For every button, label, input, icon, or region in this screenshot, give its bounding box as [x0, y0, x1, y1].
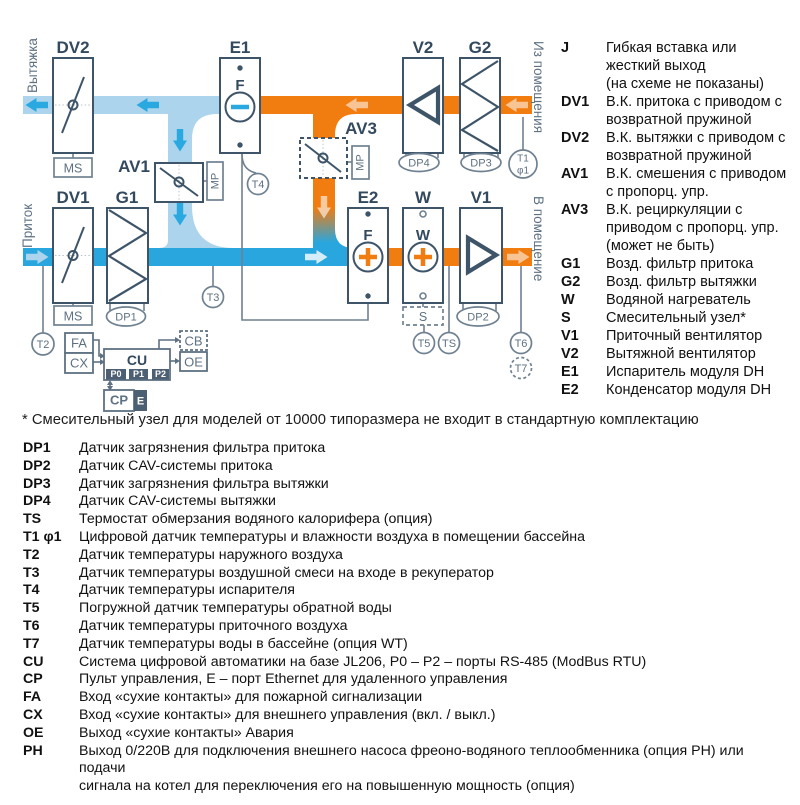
phi1-label: φ1	[517, 166, 529, 177]
sensor-text: Вход «сухие контакты» для внешнего управ…	[79, 707, 495, 725]
ethernet-label: E	[137, 396, 144, 408]
g2-title: G2	[469, 38, 492, 57]
legend-item: E1Испаритель модуля DH	[561, 363, 799, 381]
component-v2	[403, 58, 443, 153]
fa-label: FA	[71, 336, 87, 351]
legend-item: G1Возд. фильтр притока	[561, 255, 799, 273]
sensor-text: Датчик температуры приточного воздуха	[79, 618, 348, 636]
legend-item: V2Вытяжной вентилятор	[561, 345, 799, 363]
sensor-list-item: T3Датчик температуры воздушной смеси на …	[23, 565, 788, 583]
sensor-key: T4	[23, 582, 79, 600]
sensor-text: Вход «сухие контакты» для пожарной сигна…	[79, 689, 422, 707]
legend-item: DV2В.К. вытяжки с приводом с возвратной …	[561, 129, 799, 165]
component-g2	[460, 58, 500, 153]
t5-label: T5	[418, 338, 431, 350]
legend-item: AV1В.К. смешения с приводом с пропорц. у…	[561, 165, 799, 201]
component-dv2	[53, 58, 93, 153]
sensor-key: TS	[23, 511, 79, 529]
port-dot-icon	[365, 293, 370, 298]
dv2-title: DV2	[56, 38, 89, 57]
legend-item: G2Возд. фильтр вытяжки	[561, 273, 799, 291]
sensor-text: Цифровой датчик температуры и влажности …	[79, 529, 585, 547]
oe-label: OE	[184, 355, 203, 370]
legend-text: В.К. смешения с приводом с пропорц. упр.	[606, 165, 786, 201]
component-av1	[155, 163, 203, 202]
legend-text: Смесительный узел*	[606, 309, 746, 327]
port-dot-icon	[237, 142, 242, 147]
sensor-list-item: T4Датчик температуры испарителя	[23, 582, 788, 600]
legend-key: S	[561, 309, 606, 327]
sensor-text: Датчик CAV-системы вытяжки	[79, 493, 276, 511]
legend-text: Гибкая вставка или жесткий выход (на схе…	[606, 39, 764, 93]
av1-mp-label: MP	[210, 173, 222, 190]
legend-item: WВодяной нагреватель	[561, 291, 799, 309]
cu-to-cb-wire	[159, 340, 175, 349]
cu-label: CU	[127, 352, 147, 368]
dv1-title: DV1	[56, 188, 89, 207]
legend-key: V2	[561, 345, 606, 363]
dv2-ms-label: MS	[64, 162, 83, 176]
sensor-text: Пульт управления, E – порт Ethernet для …	[79, 671, 507, 689]
component-g1	[107, 208, 148, 303]
supply-flow-label: Приток	[20, 204, 35, 248]
legend-key: DV2	[561, 129, 606, 165]
sensor-list-item: CUСистема цифровой автоматики на базе JL…	[23, 654, 788, 672]
av3-mp-label: MP	[355, 154, 367, 171]
sensor-list-item: PHВыход 0/220В для подключения внешнего …	[23, 743, 788, 796]
sensor-list-item: FAВход «сухие контакты» для пожарной сиг…	[23, 689, 788, 707]
sensor-text: Датчик температуры воды в бассейне (опци…	[79, 636, 408, 654]
legend-key: G1	[561, 255, 606, 273]
component-av3	[300, 138, 347, 178]
legend-key: W	[561, 291, 606, 309]
legend-key: G2	[561, 273, 606, 291]
legend-text: Возд. фильтр вытяжки	[606, 273, 757, 291]
sensor-list-item: T2Датчик температуры наружного воздуха	[23, 547, 788, 565]
footnote: * Смесительный узел для моделей от 10000…	[22, 412, 782, 428]
v2-title: V2	[413, 38, 434, 57]
g1-title: G1	[116, 188, 139, 207]
component-e2: F	[348, 208, 388, 303]
legend-key: V1	[561, 327, 606, 345]
to-room-label: В помещение	[531, 196, 546, 281]
cb-label: CB	[184, 334, 202, 349]
sensor-key: OE	[23, 725, 79, 743]
control-unit-cluster: FA CX CB OE CU P0 P1 P2 CP E	[65, 331, 207, 411]
v1-title: V1	[471, 188, 492, 207]
e2-f-label: F	[363, 227, 372, 244]
sensor-text: Датчик загрязнения фильтра притока	[79, 440, 325, 458]
component-w: W	[403, 208, 443, 303]
port-dot-icon	[365, 211, 370, 216]
dp4-label: DP4	[408, 158, 429, 170]
dp2-label: DP2	[467, 312, 488, 324]
sensor-list-item: CXВход «сухие контакты» для внешнего упр…	[23, 707, 788, 725]
t1-label: T1	[517, 154, 529, 165]
legend-text: Возд. фильтр притока	[606, 255, 753, 273]
sensor-key: FA	[23, 689, 79, 707]
legend-item: V1Приточный вентилятор	[561, 327, 799, 345]
legend-item: JГибкая вставка или жесткий выход (на сх…	[561, 39, 799, 93]
legend-key: AV1	[561, 165, 606, 201]
fa-to-cu-wire	[93, 340, 100, 356]
component-e1: F	[220, 58, 260, 153]
sensor-list-item: T1 φ1Цифровой датчик температуры и влажн…	[23, 529, 788, 547]
sensor-list-item: CPПульт управления, E – порт Ethernet дл…	[23, 671, 788, 689]
from-room-label: Из помещения	[531, 41, 546, 133]
legend-key: E1	[561, 363, 606, 381]
ts-label: TS	[442, 338, 456, 350]
sensor-key: DP1	[23, 440, 79, 458]
port-dot-icon	[237, 65, 242, 70]
sensor-key: DP3	[23, 476, 79, 494]
legend-item: AV3В.К. рециркуляции с приводом с пропор…	[561, 201, 799, 255]
mixing-branch-fillet-bottom-right	[192, 206, 234, 248]
sensor-list-item: T5Погружной датчик температуры обратной …	[23, 600, 788, 618]
dp3-label: DP3	[470, 158, 491, 170]
av3-title: AV3	[345, 119, 377, 138]
legend-key: AV3	[561, 201, 606, 255]
p0-label: P0	[110, 369, 121, 379]
legend-key: DV1	[561, 93, 606, 129]
sensor-key: T7	[23, 636, 79, 654]
w-letter-label: W	[416, 227, 431, 244]
sensor-list-item: TSТермостат обмерзания водяного калорифе…	[23, 511, 788, 529]
sensor-key: CU	[23, 654, 79, 672]
sensor-key: T5	[23, 600, 79, 618]
e1-title: E1	[230, 38, 251, 57]
flow-arrows	[26, 98, 530, 264]
sensor-key: CX	[23, 707, 79, 725]
cp-label: CP	[110, 393, 128, 408]
component-dv1	[53, 208, 93, 303]
sensor-text: Система цифровой автоматики на базе JL20…	[79, 654, 646, 672]
legend-text: В.К. вытяжки с приводом с возвратной пру…	[606, 129, 785, 165]
legend-text: Вытяжной вентилятор	[606, 345, 756, 363]
cx-label: CX	[70, 356, 88, 371]
t3-label: T3	[207, 292, 220, 304]
mixing-branch-fillet-top	[192, 114, 217, 139]
w-title: W	[415, 188, 432, 207]
legend-text: В.К. рециркуляции с приводом с пропорц. …	[606, 201, 779, 255]
t7-label: T7	[515, 363, 528, 375]
p2-label: P2	[155, 369, 166, 379]
legend-text: Приточный вентилятор	[606, 327, 762, 345]
sensor-list-item: DP1Датчик загрязнения фильтра притока	[23, 440, 788, 458]
sensor-text: Датчик температуры воздушной смеси на вх…	[79, 565, 494, 583]
sensor-text: Выход «сухие контакты» Авария	[79, 725, 294, 743]
legend-key: J	[561, 39, 606, 93]
sensor-key: DP4	[23, 493, 79, 511]
sensor-key: PH	[23, 743, 79, 796]
mixing-branch-fillet-bottom-left	[159, 240, 168, 248]
sensor-key: CP	[23, 671, 79, 689]
sensor-list-item: OEВыход «сухие контакты» Авария	[23, 725, 788, 743]
t4-label: T4	[252, 179, 265, 191]
sensor-text: Датчик температуры испарителя	[79, 582, 295, 600]
sensor-list-item: DP4Датчик CAV-системы вытяжки	[23, 493, 788, 511]
e1-f-label: F	[235, 77, 244, 94]
legend-text: Конденсатор модуля DH	[606, 381, 771, 399]
sensor-text: Выход 0/220В для подключения внешнего на…	[79, 743, 788, 796]
sensor-text: Датчик CAV-системы притока	[79, 458, 273, 476]
hvac-schematic-diagram: F F W	[0, 0, 560, 440]
dp1-label: DP1	[115, 312, 136, 324]
p1-label: P1	[133, 369, 144, 379]
sensor-text: Датчик загрязнения фильтра вытяжки	[79, 476, 329, 494]
dv1-ms-label: MS	[64, 310, 83, 324]
sensor-list-item: DP3Датчик загрязнения фильтра вытяжки	[23, 476, 788, 494]
e2-title: E2	[358, 188, 379, 207]
air-ducts	[23, 96, 532, 266]
legend-item: DV1В.К. притока с приводом с возвратной …	[561, 93, 799, 129]
s-label: S	[419, 310, 427, 324]
legend-text: Испаритель модуля DH	[606, 363, 764, 381]
recirculation-branch-duct	[313, 114, 335, 248]
legend: JГибкая вставка или жесткий выход (на сх…	[561, 39, 799, 399]
sensor-list-item: T6Датчик температуры приточного воздуха	[23, 618, 788, 636]
sensor-key: T2	[23, 547, 79, 565]
t6-label: T6	[515, 338, 528, 350]
legend-key: E2	[561, 381, 606, 399]
legend-item: E2Конденсатор модуля DH	[561, 381, 799, 399]
sensor-key: T3	[23, 565, 79, 583]
sensor-list-item: DP2Датчик CAV-системы притока	[23, 458, 788, 476]
sensor-list-item: T7Датчик температуры воды в бассейне (оп…	[23, 636, 788, 654]
component-v1	[460, 208, 502, 303]
legend-item: SСмесительный узел*	[561, 309, 799, 327]
sensor-list: DP1Датчик загрязнения фильтра притока DP…	[23, 440, 788, 796]
av1-title: AV1	[118, 157, 150, 176]
t4-stub-line	[242, 154, 256, 173]
sensor-text: Термостат обмерзания водяного калорифера…	[79, 511, 433, 529]
t2-label: T2	[37, 339, 50, 351]
sensor-key: T1 φ1	[23, 529, 79, 547]
sensor-text: Датчик температуры наружного воздуха	[79, 547, 343, 565]
sensor-key: DP2	[23, 458, 79, 476]
sensor-key: T6	[23, 618, 79, 636]
legend-text: В.К. притока с приводом с возвратной пру…	[606, 93, 782, 129]
sensor-text: Погружной датчик температуры обратной во…	[79, 600, 392, 618]
legend-text: Водяной нагреватель	[606, 291, 751, 309]
exhaust-flow-label: Вытяжка	[25, 38, 40, 93]
